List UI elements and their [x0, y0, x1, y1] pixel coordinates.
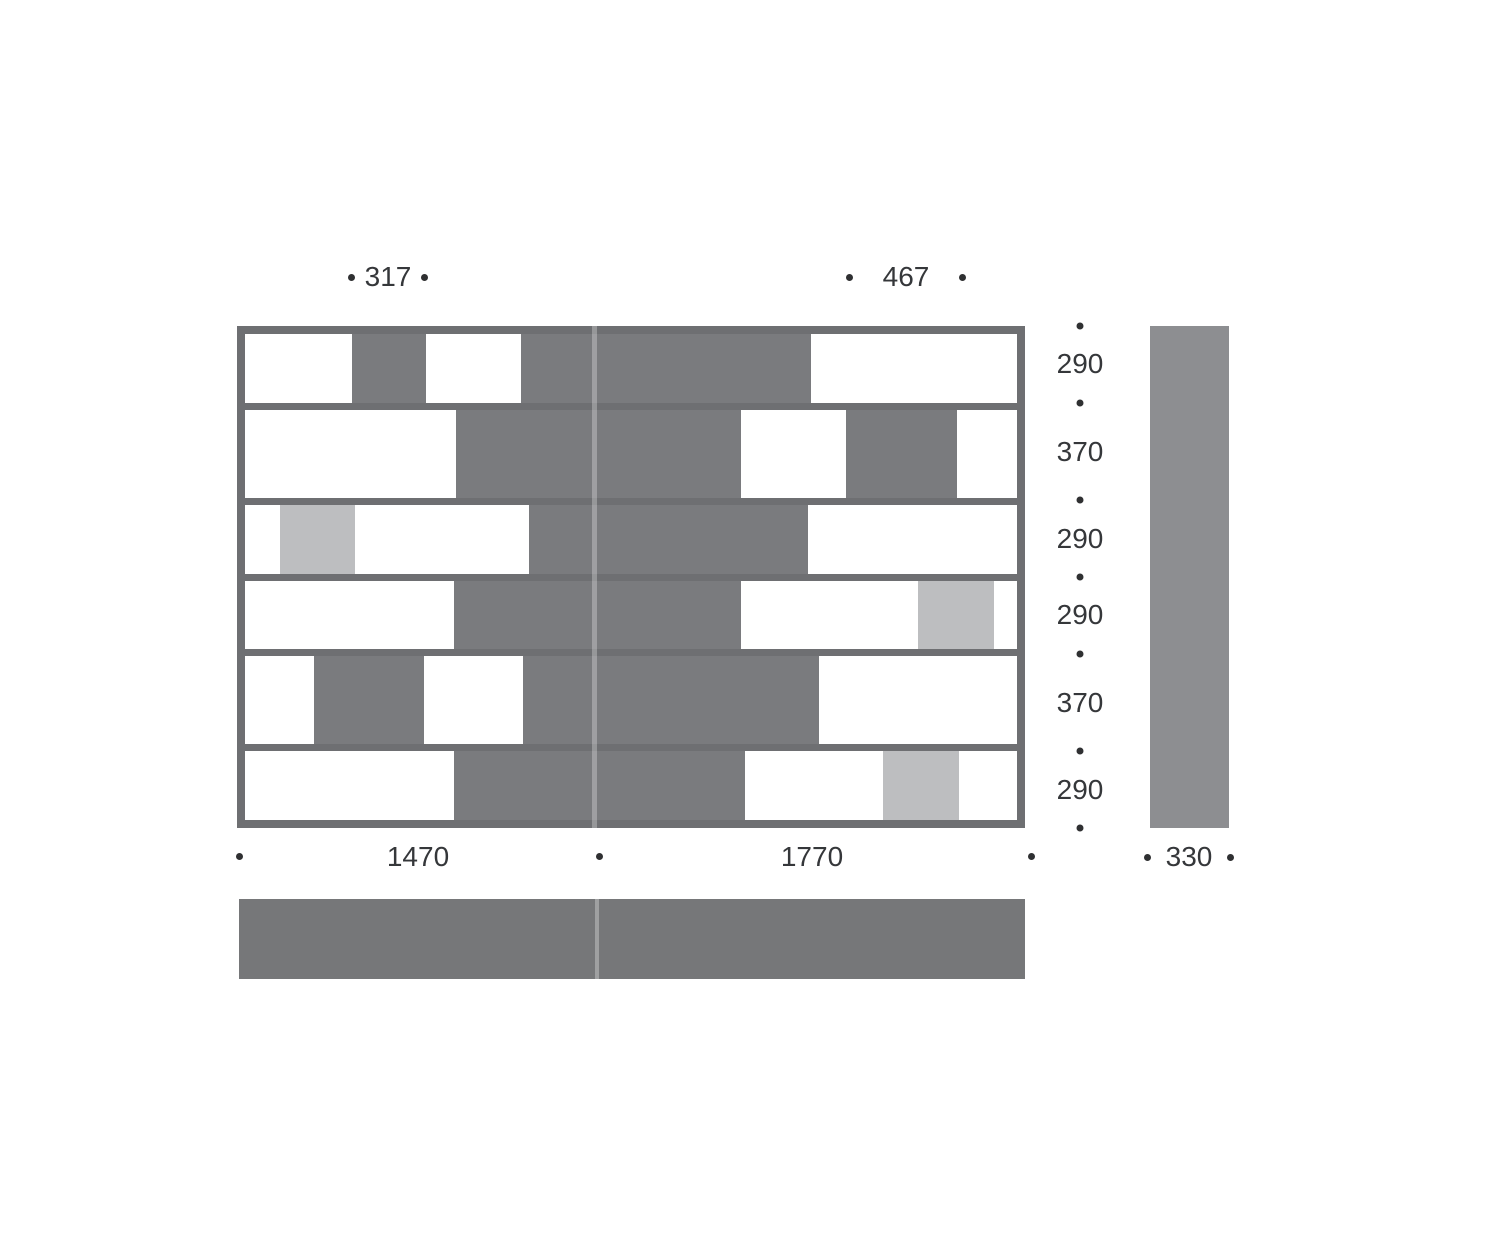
open-compartment	[994, 581, 1017, 650]
dimension-dot	[1077, 748, 1084, 755]
dimension-dot	[1028, 853, 1035, 860]
row-height-label: 290	[1057, 601, 1104, 629]
back-panel	[846, 410, 958, 498]
open-compartment	[424, 656, 523, 744]
open-compartment	[355, 505, 529, 574]
row-height-dimensions: 290370290290370290	[1048, 326, 1112, 828]
back-panel	[454, 751, 745, 820]
open-compartment	[245, 751, 454, 820]
open-compartment	[745, 751, 882, 820]
dimension-dot	[1077, 574, 1084, 581]
dimension-dot	[1077, 825, 1084, 832]
back-panel	[314, 656, 425, 744]
dimension-dot	[596, 853, 603, 860]
open-compartment	[957, 410, 1017, 498]
dimension-dot	[1144, 854, 1151, 861]
dimension-dot	[1077, 650, 1084, 657]
module-width-dimensions: 1470 1770	[237, 842, 1035, 872]
sliding-door	[918, 581, 994, 650]
dimension-label: 1770	[781, 843, 843, 871]
dimension-top-right: 467	[846, 262, 966, 292]
dimension-dot	[421, 274, 428, 281]
dimension-label: 467	[883, 263, 930, 291]
module-joint-line	[595, 899, 599, 979]
open-compartment	[811, 334, 1017, 403]
open-compartment	[245, 581, 454, 650]
row-height-label: 290	[1057, 350, 1104, 378]
dimension-dot	[236, 853, 243, 860]
dimension-drawing: 317 467 290370290290370290 1470 1770 330	[0, 0, 1500, 1250]
dimension-label: 317	[365, 263, 412, 291]
back-panel	[523, 656, 819, 744]
dimension-dot	[1077, 497, 1084, 504]
shelf-rows	[245, 334, 1017, 820]
row-height-label: 370	[1057, 689, 1104, 717]
shelf-row-2	[245, 410, 1017, 498]
dimension-label: 1470	[387, 843, 449, 871]
open-compartment	[245, 656, 314, 744]
shelf-row-1	[245, 334, 1017, 403]
dimension-depth: 330	[1144, 842, 1234, 872]
dimension-dot	[959, 274, 966, 281]
dimension-top-left: 317	[348, 262, 428, 292]
open-compartment	[959, 751, 1017, 820]
sliding-door	[280, 505, 355, 574]
shelf-row-3	[245, 505, 1017, 574]
back-panel	[454, 581, 741, 650]
open-compartment	[819, 656, 1017, 744]
open-compartment	[245, 505, 280, 574]
shelf-row-4	[245, 581, 1017, 650]
sliding-door	[883, 751, 960, 820]
open-compartment	[808, 505, 1017, 574]
open-compartment	[741, 410, 846, 498]
dimension-dot	[348, 274, 355, 281]
shelf-row-5	[245, 656, 1017, 744]
shelf-top-view	[239, 899, 1025, 979]
shelf-front-view	[237, 326, 1025, 828]
dimension-dot	[1077, 323, 1084, 330]
open-compartment	[741, 581, 918, 650]
dimension-dot	[846, 274, 853, 281]
shelf-side-view	[1150, 326, 1229, 828]
back-panel	[352, 334, 427, 403]
dimension-dot	[1227, 854, 1234, 861]
open-compartment	[245, 410, 456, 498]
dimension-label: 330	[1166, 843, 1213, 871]
back-panel	[521, 334, 811, 403]
row-height-label: 290	[1057, 525, 1104, 553]
open-compartment	[426, 334, 521, 403]
row-height-label: 290	[1057, 776, 1104, 804]
shelf-row-6	[245, 751, 1017, 820]
dimension-dot	[1077, 399, 1084, 406]
open-compartment	[245, 334, 352, 403]
back-panel	[456, 410, 741, 498]
back-panel	[529, 505, 808, 574]
row-height-label: 370	[1057, 438, 1104, 466]
